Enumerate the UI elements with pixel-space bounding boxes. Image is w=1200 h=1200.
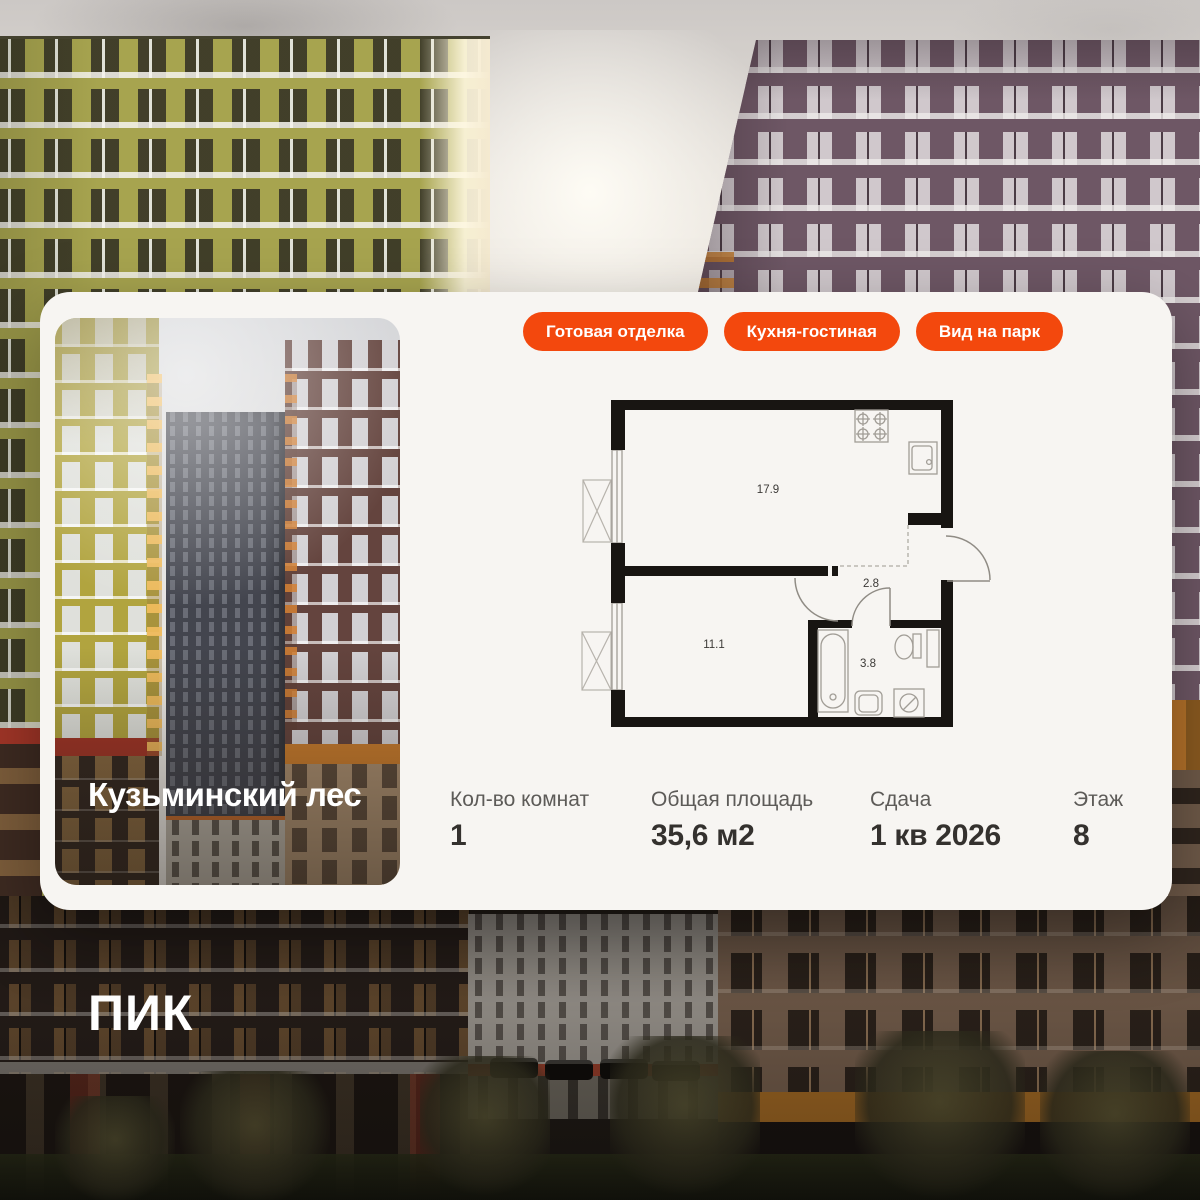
floor-plan: 17.9 11.1 2.8 3.8 [560,395,1020,740]
stat-delivery-value: 1 кв 2026 [870,819,1073,853]
background-building-right-accent [1168,700,1200,770]
badge-kitchen-living[interactable]: Кухня-гостиная [724,312,900,351]
kitchen-sink-icon [909,442,937,474]
background-building-left-base [0,728,42,900]
apartment-stats: Кол-во комнат 1 Общая площадь 35,6 м2 Сд… [450,788,1172,853]
evening-courtyard-scene [0,896,1200,1200]
stat-rooms: Кол-во комнат 1 [450,788,651,853]
washing-machine-icon [894,689,924,717]
stat-delivery-label: Сдача [870,788,1073,812]
background-building-right-base [1168,770,1200,900]
bathtub-icon [818,630,848,712]
door-arc [795,536,990,626]
listing-card: Кузьминский лес Готовая отделка Кухня-го… [40,292,1172,910]
stat-area: Общая площадь 35,6 м2 [651,788,870,853]
stat-floor-value: 8 [1073,819,1172,853]
toilet-icon [895,630,939,667]
stat-floor: Этаж 8 [1073,788,1172,853]
plan-walls [611,400,953,727]
stat-area-value: 35,6 м2 [651,819,870,853]
ad-banner: ПИК Кузьминский лес Готовая отделка Кухн… [0,0,1200,1200]
stat-rooms-label: Кол-во комнат [450,788,651,812]
room-label-kitchen: 17.9 [757,484,779,496]
stat-area-label: Общая площадь [651,788,870,812]
room-label-bathroom: 3.8 [860,658,876,670]
stove-icon [855,410,888,442]
project-photo: Кузьминский лес [55,318,400,885]
evening-shade-overlay [0,896,1200,1200]
bath-sink-icon [855,691,882,715]
feature-badges: Готовая отделка Кухня-гостиная Вид на па… [523,312,1063,351]
badge-finishing[interactable]: Готовая отделка [523,312,708,351]
stat-delivery: Сдача 1 кв 2026 [870,788,1073,853]
room-label-bedroom: 11.1 [703,639,725,651]
badge-park-view[interactable]: Вид на парк [916,312,1063,351]
stat-floor-label: Этаж [1073,788,1172,812]
balcony-icon [582,480,611,690]
pik-logo: ПИК [88,984,193,1042]
project-title: Кузьминский лес [88,776,361,814]
room-label-hallway: 2.8 [863,578,879,590]
stat-rooms-value: 1 [450,819,651,853]
entry-zone-dashed [838,525,908,566]
